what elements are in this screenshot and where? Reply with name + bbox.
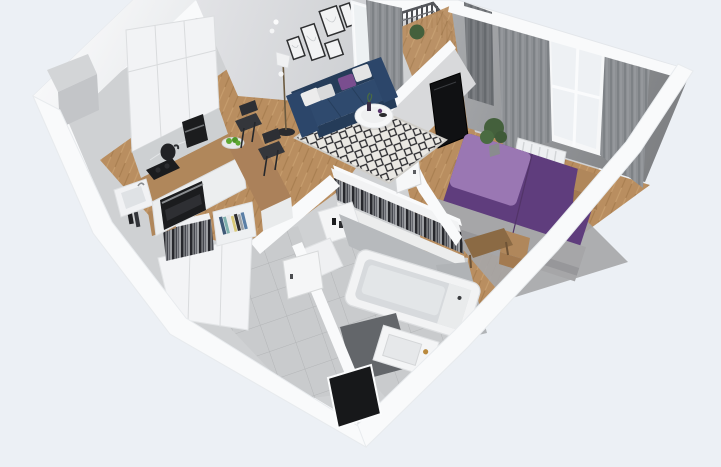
curtain-left (498, 22, 552, 150)
balcony-plant (410, 25, 425, 40)
wall-sconce (270, 29, 275, 34)
floorplan-svg: 3D isometric cutaway render of a one-bed… (0, 0, 721, 467)
door-handle (413, 170, 416, 174)
table-vase (367, 102, 371, 111)
wall-sconce (273, 19, 278, 24)
door-handle (290, 274, 293, 279)
apartment-3d-render: 3D isometric cutaway render of a one-bed… (0, 0, 721, 467)
